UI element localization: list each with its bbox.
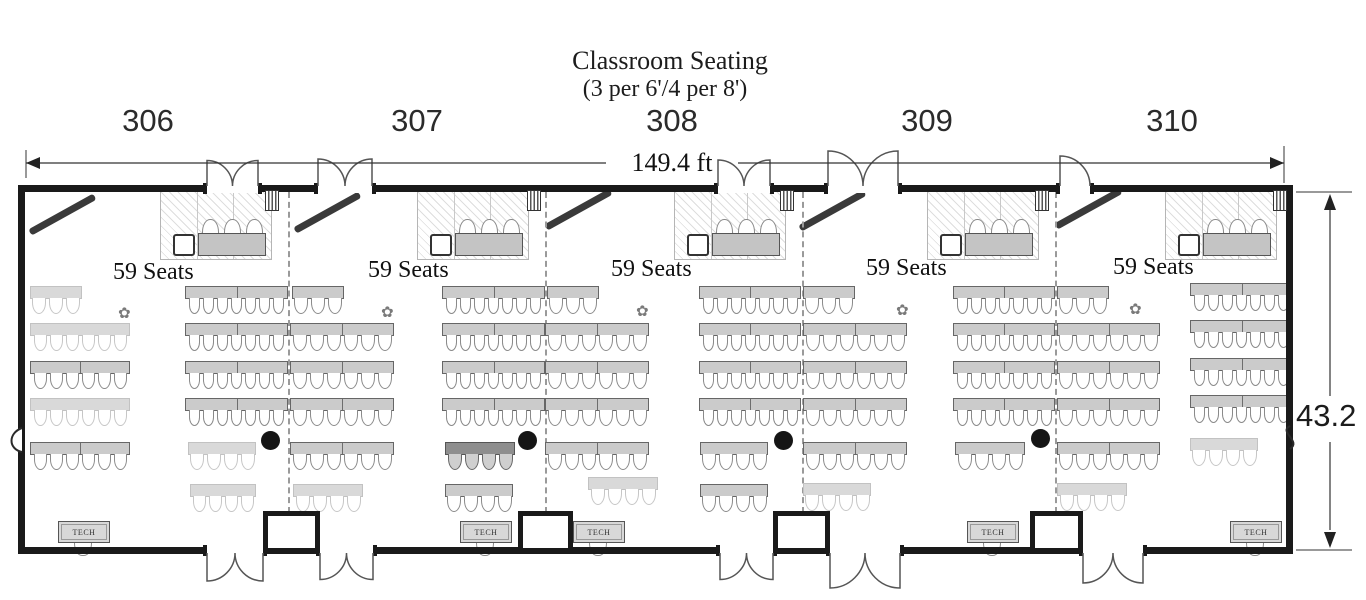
vent-box (265, 190, 279, 211)
chair (717, 410, 728, 426)
chair (474, 298, 485, 314)
chair (971, 335, 982, 351)
chair (1208, 295, 1219, 311)
chair (1059, 454, 1073, 470)
chair (447, 496, 461, 512)
chair (209, 496, 222, 512)
seats-count-label: 59 Seats (113, 259, 194, 286)
chair (1250, 332, 1261, 348)
door-swing-arc (320, 553, 373, 580)
table-segment-divider (1242, 284, 1243, 295)
chair-row (1190, 370, 1293, 386)
chair (616, 410, 630, 426)
tech-station: TECH (1230, 521, 1282, 543)
chair (565, 454, 579, 470)
table-segment-divider (237, 287, 238, 298)
seats-count-label: 59 Seats (368, 257, 449, 284)
chair (1208, 370, 1219, 386)
tech-label: TECH (588, 528, 611, 537)
chair (1127, 454, 1141, 470)
chair (245, 298, 256, 314)
chair (344, 410, 358, 426)
chair (616, 373, 630, 389)
chair (488, 373, 499, 389)
chair (446, 298, 457, 314)
chair (759, 298, 770, 314)
chair (745, 410, 756, 426)
chair (460, 298, 471, 314)
chair (753, 454, 767, 470)
chair (969, 219, 986, 234)
table-segment-divider (494, 287, 495, 298)
chair (66, 410, 79, 426)
door-opening (207, 184, 258, 193)
chair (361, 373, 375, 389)
table-segment-divider (342, 324, 343, 335)
chair (1076, 454, 1090, 470)
door-swing-arc (207, 553, 263, 581)
chair (633, 335, 647, 351)
table-segment-divider (1109, 443, 1110, 454)
chair-row (1057, 373, 1160, 389)
chair (50, 373, 63, 389)
chair (548, 335, 562, 351)
chair (625, 489, 639, 505)
chair (1236, 370, 1247, 386)
chair-row (953, 335, 1055, 351)
chair (971, 298, 982, 314)
chair (874, 410, 888, 426)
vestibule-bumpout (518, 511, 573, 548)
chair (293, 373, 307, 389)
chair (474, 410, 485, 426)
chair-row (955, 454, 1025, 470)
chair (460, 335, 471, 351)
table-segment-divider (1109, 362, 1110, 373)
chair (738, 219, 755, 234)
chair (874, 454, 888, 470)
projection-screen (28, 194, 96, 236)
chair-row (545, 454, 649, 470)
chair (582, 373, 596, 389)
vestibule-bumpout (773, 511, 830, 548)
chair (530, 335, 541, 351)
chair (1093, 373, 1107, 389)
sprinkler-icon: ✿ (1129, 302, 1142, 317)
chair-row (545, 335, 649, 351)
tech-station: TECH (967, 521, 1019, 543)
chair (773, 335, 784, 351)
chair (327, 454, 341, 470)
table-segment-divider (494, 399, 495, 410)
chair (98, 335, 111, 351)
chair-row (803, 298, 855, 314)
chair (1013, 298, 1024, 314)
chair-row (445, 496, 513, 512)
chair (1250, 407, 1261, 423)
chair (245, 335, 256, 351)
chair-row (30, 410, 130, 426)
chair (32, 298, 46, 314)
chair (566, 298, 580, 314)
chair (310, 335, 324, 351)
chair (503, 219, 520, 234)
chair (985, 410, 996, 426)
chair (1264, 370, 1275, 386)
room-number-label: 309 (901, 103, 953, 139)
chair (259, 335, 270, 351)
chair (857, 454, 871, 470)
chair (465, 454, 479, 470)
chair-row (953, 373, 1055, 389)
chair (874, 335, 888, 351)
chair (703, 410, 714, 426)
chair (957, 335, 968, 351)
door-jamb (900, 545, 904, 556)
chair (874, 373, 888, 389)
chair-row (442, 373, 545, 389)
chair (731, 410, 742, 426)
chair (548, 373, 562, 389)
chair (716, 219, 733, 234)
chair (488, 410, 499, 426)
chair (787, 298, 798, 314)
chair (1144, 410, 1158, 426)
chair (460, 373, 471, 389)
chair (1144, 335, 1158, 351)
chair (891, 410, 905, 426)
trash-can-marker (774, 431, 793, 450)
chair (975, 454, 989, 470)
table-segment-divider (1242, 396, 1243, 407)
room-number-label: 310 (1146, 103, 1198, 139)
table-segment-divider (80, 362, 81, 373)
chair-row (1057, 495, 1127, 511)
chair (1127, 373, 1141, 389)
chair (633, 454, 647, 470)
chair (378, 454, 392, 470)
av-cart (1178, 234, 1200, 256)
chair (207, 454, 221, 470)
chair (225, 496, 238, 512)
chair-row (30, 454, 130, 470)
chair (806, 335, 820, 351)
chair (189, 298, 200, 314)
chair (1059, 373, 1073, 389)
chair (1093, 410, 1107, 426)
projection-screen (544, 189, 612, 231)
chair (502, 335, 513, 351)
table-segment-divider (855, 443, 856, 454)
chair (957, 410, 968, 426)
chair (773, 373, 784, 389)
chair (760, 219, 777, 234)
door-jamb (770, 183, 774, 194)
chair (717, 298, 728, 314)
door-swing-arc (1083, 553, 1143, 583)
table-segment-divider (750, 324, 751, 335)
chair (633, 373, 647, 389)
chair (82, 373, 95, 389)
door-jamb (1090, 183, 1094, 194)
chair (971, 373, 982, 389)
chair (583, 298, 597, 314)
chair (823, 373, 837, 389)
door-opening (830, 546, 900, 555)
chair (1013, 335, 1024, 351)
chair (459, 219, 476, 234)
chair-row (185, 373, 288, 389)
chair-row (1057, 335, 1160, 351)
chair (992, 454, 1006, 470)
trash-can-marker (1031, 429, 1050, 448)
vent-box (780, 190, 794, 211)
chair (245, 373, 256, 389)
chair (565, 410, 579, 426)
sprinkler-icon: ✿ (896, 303, 909, 318)
chair (806, 373, 820, 389)
chair (327, 335, 341, 351)
chair (1059, 335, 1073, 351)
chair (203, 335, 214, 351)
chair (731, 373, 742, 389)
vent-box (527, 190, 541, 211)
chair (530, 410, 541, 426)
chair (642, 489, 656, 505)
chair (293, 335, 307, 351)
door-jamb (714, 183, 718, 194)
table-segment-divider (855, 324, 856, 335)
dimension-extension (1296, 192, 1352, 550)
door-jamb (373, 545, 377, 556)
chair-row (803, 373, 907, 389)
chair (1208, 407, 1219, 423)
chair (49, 298, 63, 314)
chair (361, 335, 375, 351)
page-title: Classroom Seating (572, 46, 768, 76)
chair (231, 373, 242, 389)
door-swing-arc (830, 553, 900, 588)
chair-row (545, 373, 649, 389)
table-segment-divider (855, 399, 856, 410)
chair (1192, 450, 1206, 466)
dimension-arrow (1324, 532, 1336, 548)
chair (446, 410, 457, 426)
chair (1229, 219, 1246, 234)
chair (582, 454, 596, 470)
chair (1222, 295, 1233, 311)
chair (599, 373, 613, 389)
chair (548, 410, 562, 426)
chair (856, 495, 870, 511)
chair (759, 335, 770, 351)
chair-row (30, 373, 130, 389)
chair (985, 335, 996, 351)
chair-row (588, 489, 658, 505)
chair (516, 298, 527, 314)
chair (361, 410, 375, 426)
chair-row (547, 298, 599, 314)
chair (488, 298, 499, 314)
seats-count-label: 59 Seats (866, 255, 947, 282)
chair-row (1190, 295, 1293, 311)
chair (189, 335, 200, 351)
chair-row (953, 410, 1055, 426)
chair (474, 335, 485, 351)
chair (446, 335, 457, 351)
chair (273, 298, 284, 314)
chair (231, 298, 242, 314)
chair (1127, 335, 1141, 351)
sprinkler-icon: ✿ (381, 305, 394, 320)
chair (273, 335, 284, 351)
chair-row (185, 298, 288, 314)
chair (591, 489, 605, 505)
door-opening (1060, 184, 1090, 193)
chair (202, 219, 219, 234)
chair (481, 496, 495, 512)
chair (114, 410, 127, 426)
chair (891, 454, 905, 470)
chair (1194, 332, 1205, 348)
chair-row (700, 496, 768, 512)
chair (66, 335, 79, 351)
chair (66, 298, 80, 314)
tech-station: TECH (573, 521, 625, 543)
table-segment-divider (597, 399, 598, 410)
chair (217, 335, 228, 351)
chair (361, 454, 375, 470)
sprinkler-icon: ✿ (636, 304, 649, 319)
vestibule-bumpout (1030, 511, 1083, 548)
chair (1264, 407, 1275, 423)
chair-row (442, 298, 545, 314)
chair (1250, 370, 1261, 386)
chair (822, 495, 836, 511)
door-opening (318, 184, 372, 193)
chair (378, 373, 392, 389)
chair (311, 298, 325, 314)
chair (1111, 495, 1125, 511)
table-segment-divider (750, 287, 751, 298)
chair (50, 454, 63, 470)
table-segment-divider (342, 443, 343, 454)
chair (1264, 295, 1275, 311)
chair (293, 454, 307, 470)
chair (565, 373, 579, 389)
chair (114, 335, 127, 351)
table-segment-divider (237, 399, 238, 410)
chair-row (1057, 298, 1109, 314)
chair (957, 298, 968, 314)
chair (731, 335, 742, 351)
chair (702, 496, 716, 512)
tech-label: TECH (475, 528, 498, 537)
chair-row (293, 496, 363, 512)
chair (310, 410, 324, 426)
vent-box (1035, 190, 1049, 211)
door-opening (320, 546, 373, 555)
vestibule-bumpout (263, 511, 320, 548)
chair (203, 298, 214, 314)
dimension-arrow (26, 157, 40, 169)
table-segment-divider (1242, 321, 1243, 332)
door-swing-arc (828, 151, 898, 186)
chair (759, 410, 770, 426)
chair (259, 373, 270, 389)
chair (1027, 410, 1038, 426)
chair (66, 454, 79, 470)
chair (1027, 298, 1038, 314)
chair (488, 335, 499, 351)
trash-can-marker (261, 431, 280, 450)
chair (330, 496, 344, 512)
chair (1236, 295, 1247, 311)
chair (502, 410, 513, 426)
door-opening (720, 546, 773, 555)
table-segment-divider (597, 362, 598, 373)
chair (549, 298, 563, 314)
table-segment-divider (1109, 399, 1110, 410)
chair (66, 373, 79, 389)
chair (1251, 219, 1268, 234)
chair (34, 410, 47, 426)
chair (703, 335, 714, 351)
chair-row (953, 298, 1055, 314)
chair (616, 335, 630, 351)
chair (840, 335, 854, 351)
chair (1094, 495, 1108, 511)
chair (745, 373, 756, 389)
chair (787, 335, 798, 351)
chair (759, 373, 770, 389)
chair (293, 410, 307, 426)
chair (114, 454, 127, 470)
sprinkler-icon: ✿ (118, 306, 131, 321)
chair (1060, 495, 1074, 511)
door-swing-arc (318, 159, 372, 186)
chair (474, 373, 485, 389)
chair (823, 335, 837, 351)
table-segment-divider (494, 324, 495, 335)
chair (822, 298, 836, 314)
dimension-arrow (1270, 157, 1284, 169)
instructor-table (712, 233, 780, 256)
door-opening (828, 184, 898, 193)
chair (464, 496, 478, 512)
chair (857, 335, 871, 351)
projection-screen (798, 190, 866, 232)
chair (516, 373, 527, 389)
chair (1013, 219, 1030, 234)
chair (502, 298, 513, 314)
room-number-label: 307 (391, 103, 443, 139)
chair (608, 489, 622, 505)
chair (999, 298, 1010, 314)
chair (717, 335, 728, 351)
chair (530, 373, 541, 389)
chair (313, 496, 327, 512)
chair-row (700, 454, 768, 470)
chair (189, 373, 200, 389)
chair (773, 298, 784, 314)
chair (1144, 373, 1158, 389)
chair (296, 496, 310, 512)
chair (217, 373, 228, 389)
tech-label: TECH (982, 528, 1005, 537)
chair-row (190, 496, 256, 512)
table-segment-divider (1004, 324, 1005, 335)
